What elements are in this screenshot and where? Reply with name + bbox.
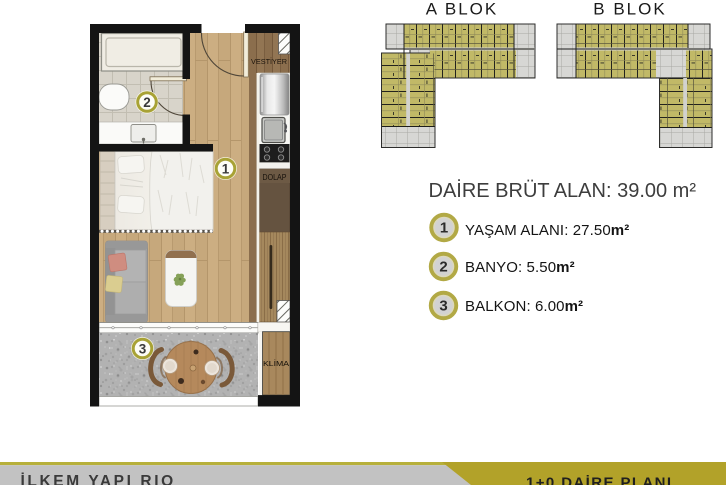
svg-text:KLİMA: KLİMA [263, 359, 289, 368]
svg-text:DOLAP: DOLAP [263, 173, 287, 182]
svg-text:VESTİYER: VESTİYER [251, 57, 287, 66]
svg-text:1: 1 [440, 220, 448, 237]
svg-text:BALKON: 6.00m²: BALKON: 6.00m² [465, 298, 583, 315]
svg-text:1: 1 [222, 161, 230, 176]
svg-text:3: 3 [439, 298, 447, 315]
svg-text:B BLOK: B BLOK [593, 0, 666, 18]
svg-text:DAİRE BRÜT ALAN: 39.00 m²: DAİRE BRÜT ALAN: 39.00 m² [429, 179, 697, 202]
svg-text:1+0 DAİRE PLANI: 1+0 DAİRE PLANI [526, 475, 672, 485]
svg-text:2: 2 [439, 259, 447, 276]
svg-text:3: 3 [139, 341, 147, 356]
svg-text:İLKEM YAPI RIO: İLKEM YAPI RIO [21, 473, 176, 485]
svg-text:2: 2 [143, 95, 151, 110]
svg-text:BANYO: 5.50m²: BANYO: 5.50m² [465, 259, 575, 276]
svg-text:A BLOK: A BLOK [426, 0, 498, 18]
svg-text:YAŞAM ALANI: 27.50m²: YAŞAM ALANI: 27.50m² [465, 222, 629, 239]
